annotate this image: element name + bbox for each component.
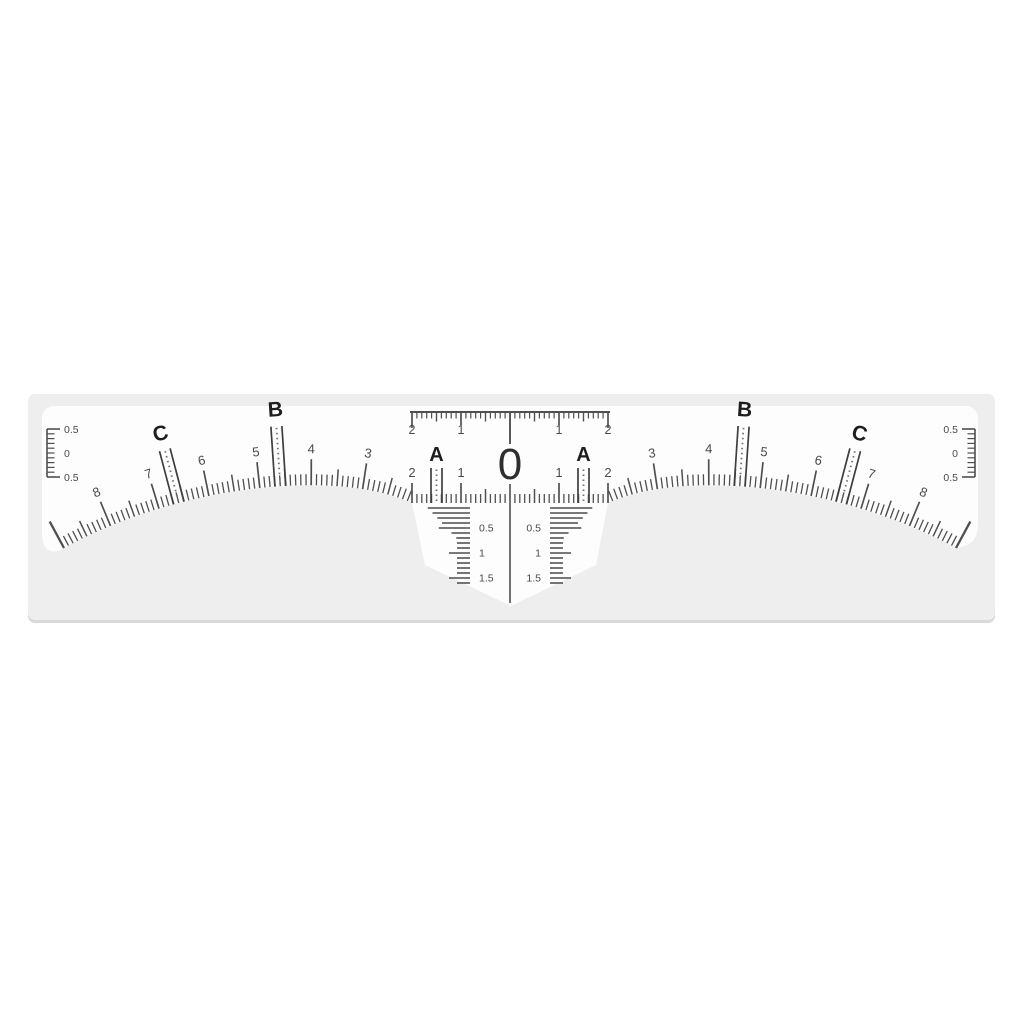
arc-tick	[677, 476, 678, 487]
top-scale-number: 1	[458, 423, 465, 437]
product-image: 211221120AA345678BC345678BC0.500.50.500.…	[0, 0, 1024, 1024]
drop-number: 1.5	[479, 573, 494, 585]
arc-number: 4	[308, 441, 315, 456]
marker-letter: A	[429, 444, 443, 466]
arc-tick	[729, 475, 730, 486]
marker-letter: B	[267, 398, 284, 422]
drop-number: 0.5	[479, 523, 494, 535]
bracket-number: 0.5	[64, 472, 79, 484]
drop-number: 1.5	[526, 573, 541, 585]
marker-letter: B	[736, 398, 753, 422]
top-scale-number: 2	[605, 423, 612, 437]
arc-tick	[688, 475, 689, 486]
drop-number: 0.5	[526, 523, 541, 535]
arc-tick	[342, 476, 343, 487]
zero-label: 0	[498, 440, 522, 489]
marker-letter: A	[576, 444, 590, 466]
top-scale-number: 2	[409, 423, 416, 437]
bracket-number: 0.5	[943, 472, 958, 484]
baseline-number: 1	[457, 465, 464, 480]
baseline-number: 2	[408, 465, 415, 480]
arc-number: 4	[705, 441, 712, 456]
arc-tick	[332, 475, 333, 486]
bracket-number: 0.5	[64, 424, 79, 436]
baseline-number: 1	[555, 465, 562, 480]
drop-number: 1	[479, 548, 485, 560]
arc-tick	[290, 475, 291, 486]
eyebrow-ruler-sticker: 211221120AA345678BC345678BC0.500.50.500.…	[0, 0, 1024, 1024]
top-scale-number: 1	[556, 423, 563, 437]
bracket-number: 0	[952, 448, 958, 460]
bracket-number: 0.5	[943, 424, 958, 436]
bracket-number: 0	[64, 448, 70, 460]
drop-number: 1	[535, 548, 541, 560]
arc-tick	[740, 475, 741, 486]
baseline-number: 2	[604, 465, 611, 480]
arc-tick	[280, 475, 281, 486]
